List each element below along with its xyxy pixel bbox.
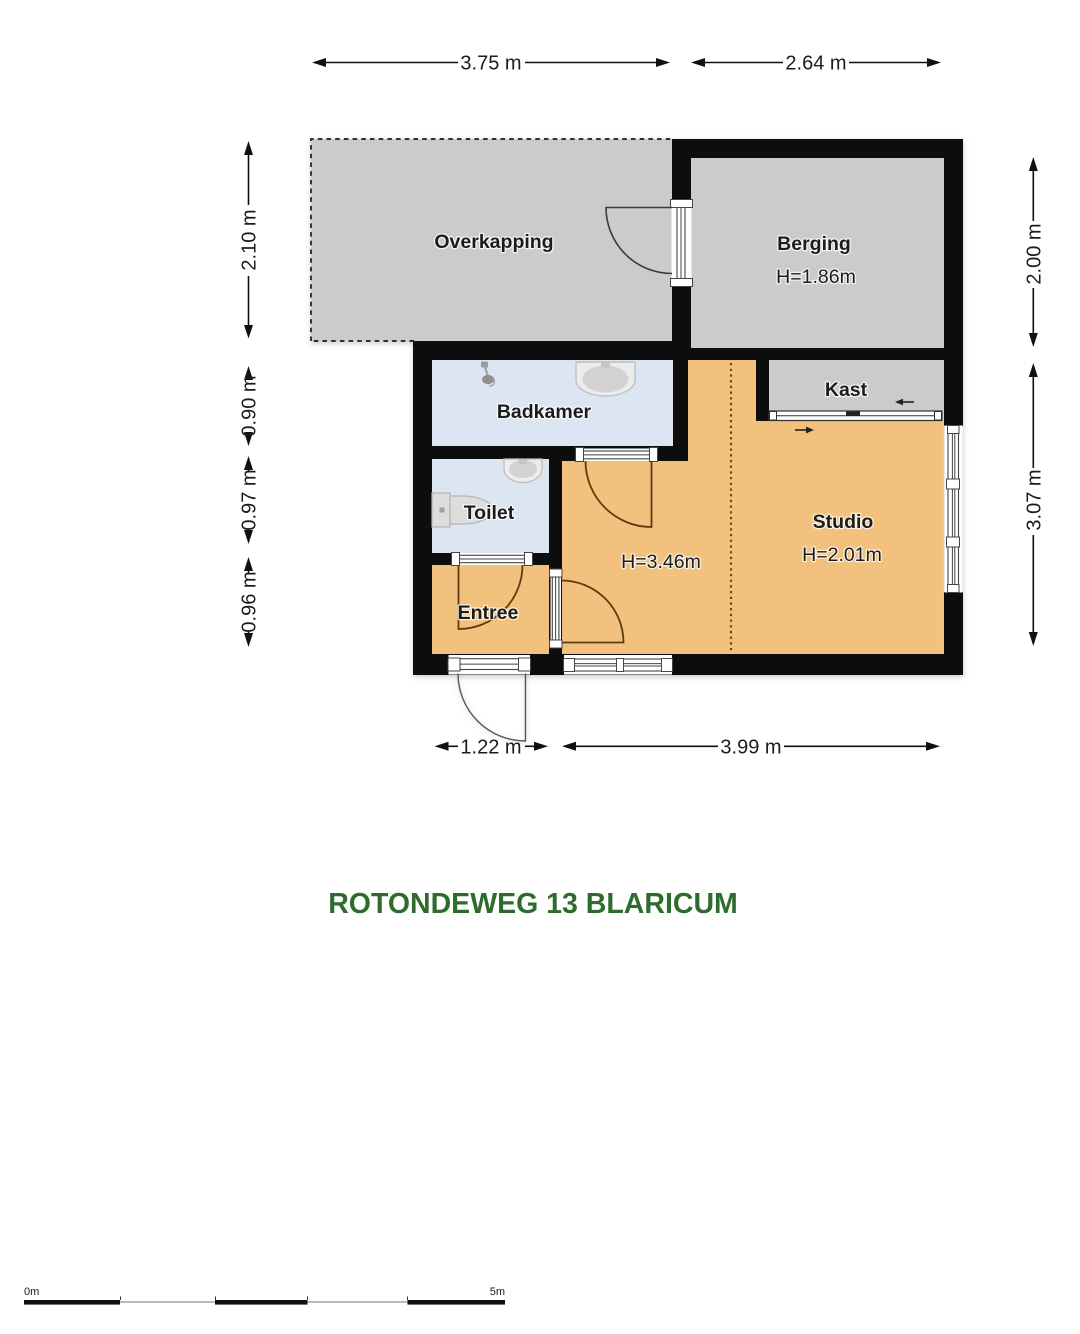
svg-text:5m: 5m <box>490 1286 505 1298</box>
svg-text:Kast: Kast <box>825 379 868 401</box>
svg-text:2.00 m: 2.00 m <box>1023 223 1045 284</box>
svg-text:Berging: Berging <box>777 233 851 255</box>
svg-text:1.22 m: 1.22 m <box>460 736 521 758</box>
svg-text:Studio: Studio <box>813 511 874 533</box>
svg-text:Overkapping: Overkapping <box>434 231 553 253</box>
svg-text:Toilet: Toilet <box>464 502 515 524</box>
svg-text:H=2.01m: H=2.01m <box>802 544 882 566</box>
svg-text:0.97 m: 0.97 m <box>239 469 261 530</box>
svg-text:H=3.46m: H=3.46m <box>621 551 701 573</box>
svg-text:0.90 m: 0.90 m <box>239 375 261 436</box>
svg-text:3.07 m: 3.07 m <box>1023 469 1045 530</box>
svg-text:Badkamer: Badkamer <box>497 401 592 423</box>
svg-text:3.75 m: 3.75 m <box>460 53 521 75</box>
svg-text:3.99 m: 3.99 m <box>720 736 781 758</box>
svg-text:H=1.86m: H=1.86m <box>776 266 856 288</box>
svg-text:ROTONDEWEG 13 BLARICUM: ROTONDEWEG 13 BLARICUM <box>328 888 738 920</box>
svg-text:0m: 0m <box>24 1286 39 1298</box>
svg-text:2.64 m: 2.64 m <box>785 53 846 75</box>
svg-text:Entree: Entree <box>458 602 519 624</box>
svg-text:2.10 m: 2.10 m <box>239 209 261 270</box>
svg-text:0.96 m: 0.96 m <box>239 571 261 632</box>
